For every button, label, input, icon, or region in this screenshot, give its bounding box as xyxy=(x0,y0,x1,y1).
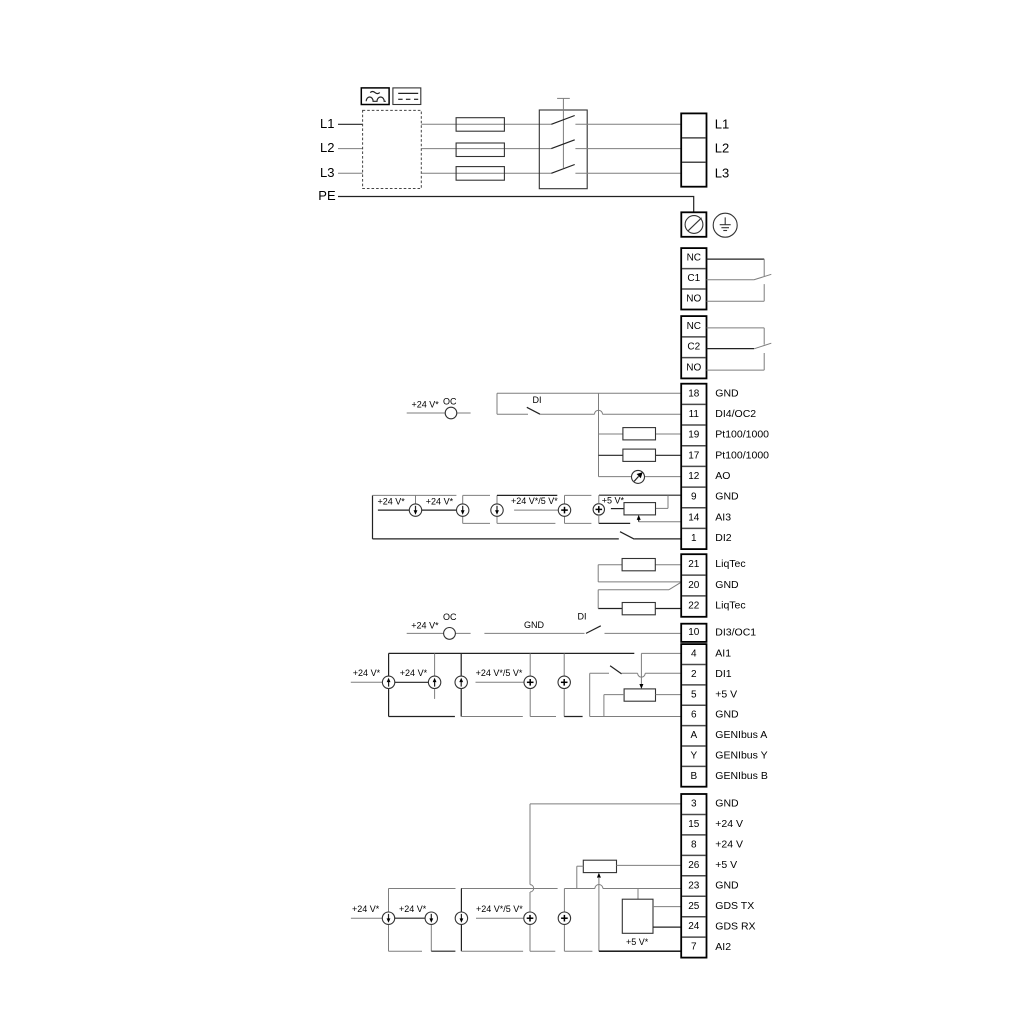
svg-text:20: 20 xyxy=(688,580,700,591)
svg-text:Y: Y xyxy=(690,750,697,761)
svg-text:4: 4 xyxy=(691,649,697,660)
svg-text:NO: NO xyxy=(686,362,701,373)
svg-text:GENIbus Y: GENIbus Y xyxy=(715,749,767,761)
svg-text:GND: GND xyxy=(715,880,739,892)
svg-text:26: 26 xyxy=(688,860,700,871)
svg-text:L2: L2 xyxy=(320,140,334,155)
svg-text:B: B xyxy=(690,771,697,782)
svg-text:GND: GND xyxy=(715,491,739,503)
svg-text:DI3/OC1: DI3/OC1 xyxy=(715,626,756,638)
svg-text:L2: L2 xyxy=(715,141,729,156)
svg-text:+5 V*: +5 V* xyxy=(602,496,625,506)
svg-text:L1: L1 xyxy=(320,116,334,131)
svg-text:A: A xyxy=(690,730,697,741)
svg-text:C1: C1 xyxy=(687,273,700,284)
svg-text:15: 15 xyxy=(688,819,700,830)
svg-text:DI1: DI1 xyxy=(715,668,732,680)
svg-text:GENIbus A: GENIbus A xyxy=(715,729,767,741)
svg-text:24: 24 xyxy=(688,921,700,932)
svg-text:21: 21 xyxy=(688,559,700,570)
svg-text:+5 V: +5 V xyxy=(715,688,737,700)
svg-text:GND: GND xyxy=(715,709,739,721)
svg-text:NC: NC xyxy=(687,321,701,332)
svg-text:+24 V*: +24 V* xyxy=(353,668,381,678)
svg-text:6: 6 xyxy=(691,710,697,721)
svg-text:AI1: AI1 xyxy=(715,648,731,660)
svg-text:L3: L3 xyxy=(320,165,334,180)
svg-text:+24 V*/5 V*: +24 V*/5 V* xyxy=(476,904,523,914)
svg-text:11: 11 xyxy=(689,409,700,420)
svg-text:LiqTec: LiqTec xyxy=(715,600,745,612)
svg-text:AI2: AI2 xyxy=(715,941,731,953)
svg-text:NC: NC xyxy=(687,253,701,264)
svg-text:1: 1 xyxy=(691,533,697,544)
svg-text:22: 22 xyxy=(688,601,700,612)
svg-text:+24 V*: +24 V* xyxy=(426,497,454,507)
svg-text:12: 12 xyxy=(688,471,700,482)
svg-text:GENIbus B: GENIbus B xyxy=(715,770,768,782)
svg-text:Pt100/1000: Pt100/1000 xyxy=(715,429,769,441)
svg-text:+24 V*: +24 V* xyxy=(378,497,406,507)
svg-text:25: 25 xyxy=(688,901,700,912)
svg-text:+24 V*: +24 V* xyxy=(412,399,440,409)
svg-text:AI3: AI3 xyxy=(715,511,731,523)
svg-text:L1: L1 xyxy=(715,116,729,131)
svg-text:+24 V*: +24 V* xyxy=(352,904,380,914)
svg-text:+5 V: +5 V xyxy=(715,859,737,871)
svg-text:C2: C2 xyxy=(687,342,700,353)
svg-text:9: 9 xyxy=(691,492,697,503)
svg-text:+24 V*: +24 V* xyxy=(399,904,427,914)
svg-text:GND: GND xyxy=(715,387,739,399)
svg-text:10: 10 xyxy=(688,627,700,638)
svg-text:GND: GND xyxy=(715,579,739,591)
svg-text:+24 V*: +24 V* xyxy=(400,668,428,678)
svg-text:GDS TX: GDS TX xyxy=(715,900,754,912)
svg-text:GDS RX: GDS RX xyxy=(715,920,755,932)
svg-text:GND: GND xyxy=(715,798,739,810)
svg-text:+24 V*: +24 V* xyxy=(411,620,439,630)
svg-text:DI4/OC2: DI4/OC2 xyxy=(715,408,756,420)
svg-text:DI2: DI2 xyxy=(715,532,732,544)
svg-text:23: 23 xyxy=(688,880,700,891)
svg-text:17: 17 xyxy=(688,450,700,461)
svg-text:PE: PE xyxy=(318,188,336,203)
svg-text:+24 V: +24 V xyxy=(715,818,743,830)
svg-text:AO: AO xyxy=(715,470,730,482)
svg-text:DI: DI xyxy=(533,395,542,405)
svg-text:OC: OC xyxy=(443,397,457,407)
svg-text:3: 3 xyxy=(691,799,697,810)
svg-text:8: 8 xyxy=(691,839,697,850)
svg-text:19: 19 xyxy=(688,430,700,441)
svg-text:LiqTec: LiqTec xyxy=(715,558,745,570)
svg-text:+24 V: +24 V xyxy=(715,839,743,851)
svg-text:5: 5 xyxy=(691,689,697,700)
svg-text:OC: OC xyxy=(443,612,457,622)
svg-text:NO: NO xyxy=(686,294,701,305)
svg-text:DI: DI xyxy=(578,611,587,621)
svg-text:GND: GND xyxy=(524,620,545,630)
svg-text:Pt100/1000: Pt100/1000 xyxy=(715,449,769,461)
svg-text:+5 V*: +5 V* xyxy=(626,937,649,947)
svg-text:L3: L3 xyxy=(715,165,729,180)
svg-text:2: 2 xyxy=(691,669,697,680)
svg-text:+24 V*/5 V*: +24 V*/5 V* xyxy=(511,496,558,506)
svg-text:+24 V*/5 V*: +24 V*/5 V* xyxy=(476,668,523,678)
svg-text:14: 14 xyxy=(688,512,700,523)
svg-text:18: 18 xyxy=(688,388,700,399)
svg-text:7: 7 xyxy=(691,942,697,953)
